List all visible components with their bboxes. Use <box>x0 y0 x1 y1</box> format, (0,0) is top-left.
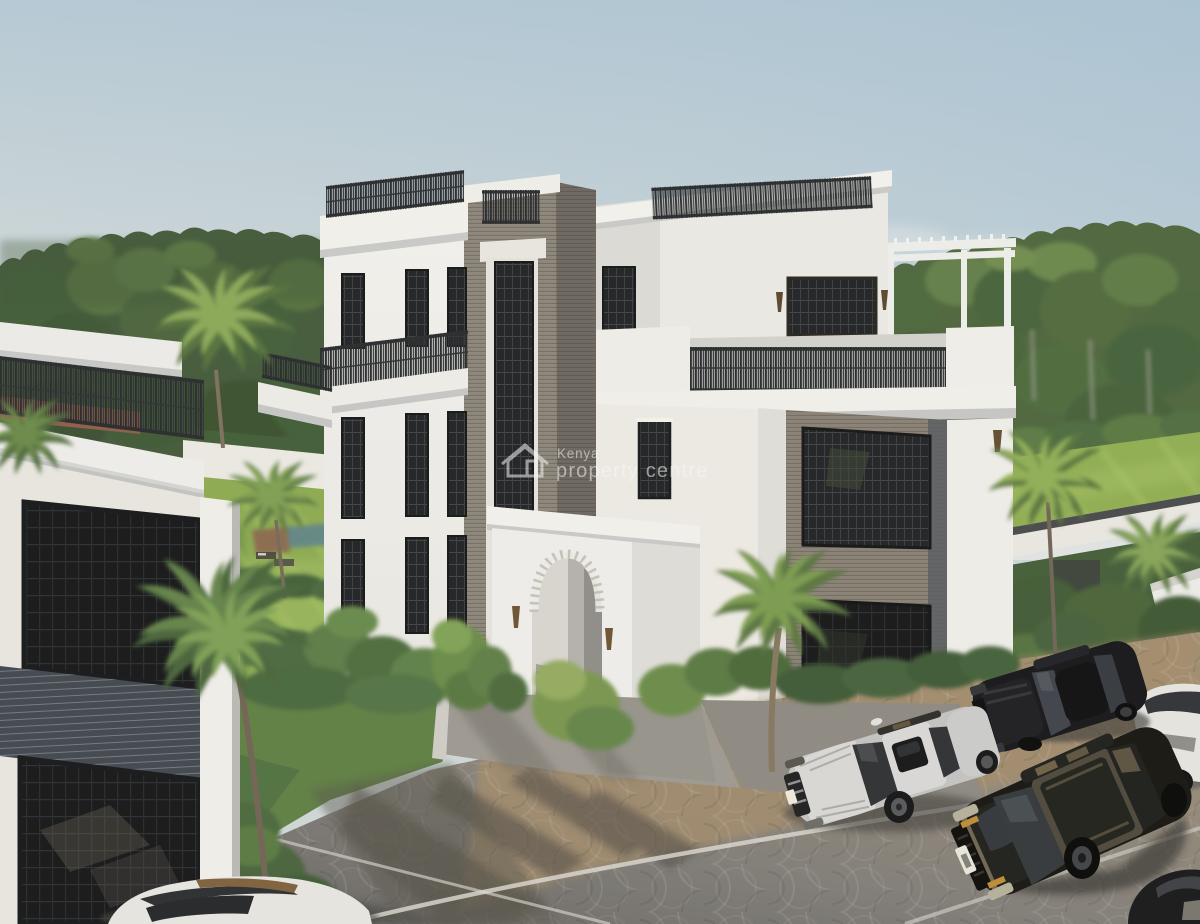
svg-text:Kenya: Kenya <box>557 446 599 461</box>
svg-text:property centre: property centre <box>556 460 709 482</box>
